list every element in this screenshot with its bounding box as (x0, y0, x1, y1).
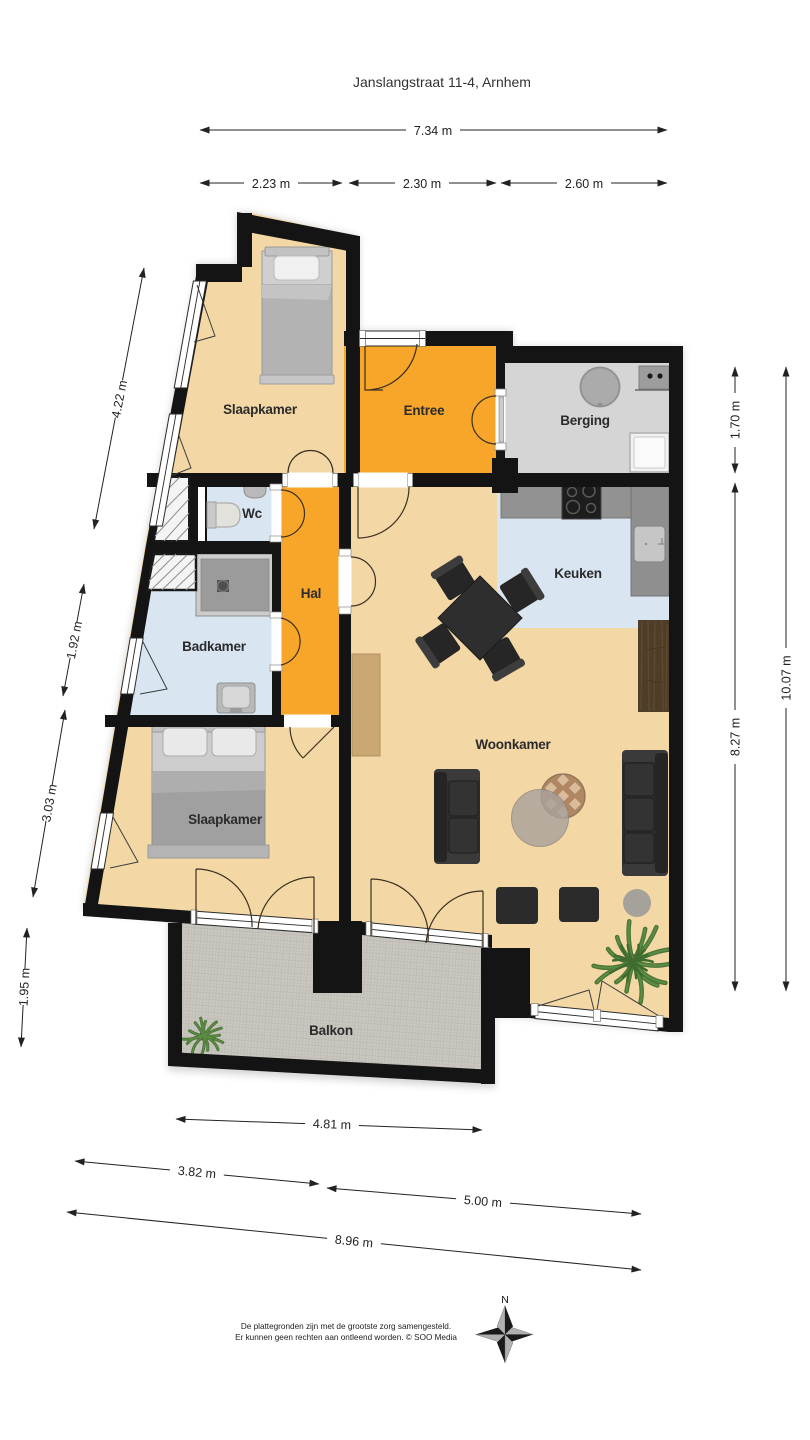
svg-text:Janslangstraat 11-4, Arnhem: Janslangstraat 11-4, Arnhem (353, 74, 531, 90)
svg-text:4.81 m: 4.81 m (313, 1117, 352, 1132)
svg-text:Slaapkamer: Slaapkamer (223, 402, 298, 417)
svg-text:Berging: Berging (560, 413, 610, 428)
svg-text:2.30 m: 2.30 m (403, 177, 441, 191)
svg-text:De plattegronden zijn met de g: De plattegronden zijn met de grootste zo… (241, 1322, 451, 1331)
svg-text:1.95 m: 1.95 m (17, 968, 33, 1007)
svg-text:10.07 m: 10.07 m (780, 655, 794, 700)
svg-text:N: N (501, 1294, 509, 1306)
svg-text:Badkamer: Badkamer (182, 639, 247, 654)
svg-text:Er kunnen geen rechten aan ont: Er kunnen geen rechten aan ontleend word… (235, 1333, 457, 1342)
svg-text:8.27 m: 8.27 m (729, 718, 743, 756)
svg-text:Entree: Entree (404, 403, 446, 418)
svg-text:Wc: Wc (242, 506, 263, 521)
svg-text:2.23 m: 2.23 m (252, 177, 290, 191)
svg-text:1.70 m: 1.70 m (729, 401, 743, 439)
svg-text:Balkon: Balkon (309, 1023, 353, 1038)
svg-text:7.34 m: 7.34 m (414, 124, 452, 138)
svg-text:Keuken: Keuken (554, 566, 602, 581)
svg-text:Hal: Hal (301, 586, 321, 601)
svg-text:2.60 m: 2.60 m (565, 177, 603, 191)
svg-text:Woonkamer: Woonkamer (475, 737, 551, 752)
svg-text:Slaapkamer: Slaapkamer (188, 812, 263, 827)
